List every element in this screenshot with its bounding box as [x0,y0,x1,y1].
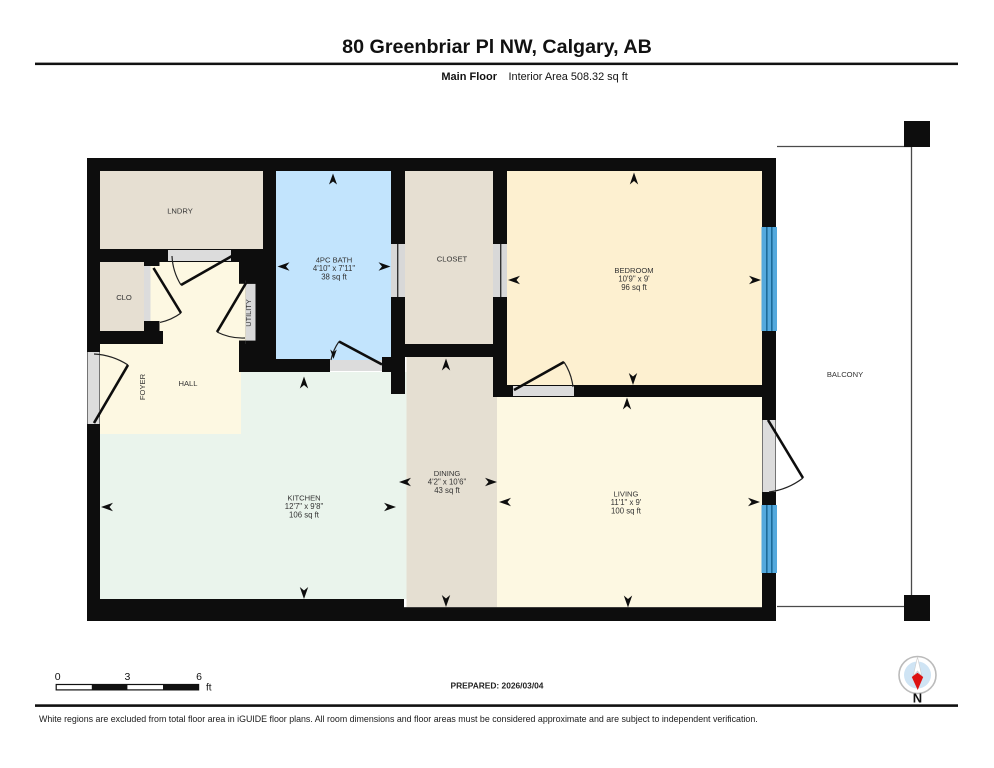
svg-text:38 sq ft: 38 sq ft [321,272,347,281]
svg-text:Interior Area 508.32 sq ft: Interior Area 508.32 sq ft [509,71,628,83]
svg-text:CLOSET: CLOSET [437,255,468,264]
svg-text:100 sq ft: 100 sq ft [611,506,642,515]
svg-text:FOYER: FOYER [138,373,147,400]
svg-text:N: N [913,691,922,706]
svg-text:White regions are excluded fro: White regions are excluded from total fl… [39,714,758,724]
svg-text:ft: ft [206,683,212,694]
svg-text:PREPARED: 2026/03/04: PREPARED: 2026/03/04 [451,681,544,691]
svg-text:6: 6 [196,671,202,683]
svg-text:UTILITY: UTILITY [244,299,253,327]
svg-text:80 Greenbriar Pl NW, Calgary,: 80 Greenbriar Pl NW, Calgary, AB [342,36,652,58]
svg-text:CLO: CLO [116,293,132,302]
svg-text:LNDRY: LNDRY [167,207,193,216]
svg-text:BALCONY: BALCONY [827,370,863,379]
svg-text:96 sq ft: 96 sq ft [621,283,647,292]
svg-text:3: 3 [124,671,130,683]
svg-text:43 sq ft: 43 sq ft [434,486,460,495]
svg-text:Main Floor: Main Floor [441,71,497,83]
svg-text:0: 0 [55,671,61,683]
svg-text:106 sq ft: 106 sq ft [289,511,320,520]
svg-text:HALL: HALL [179,379,198,388]
